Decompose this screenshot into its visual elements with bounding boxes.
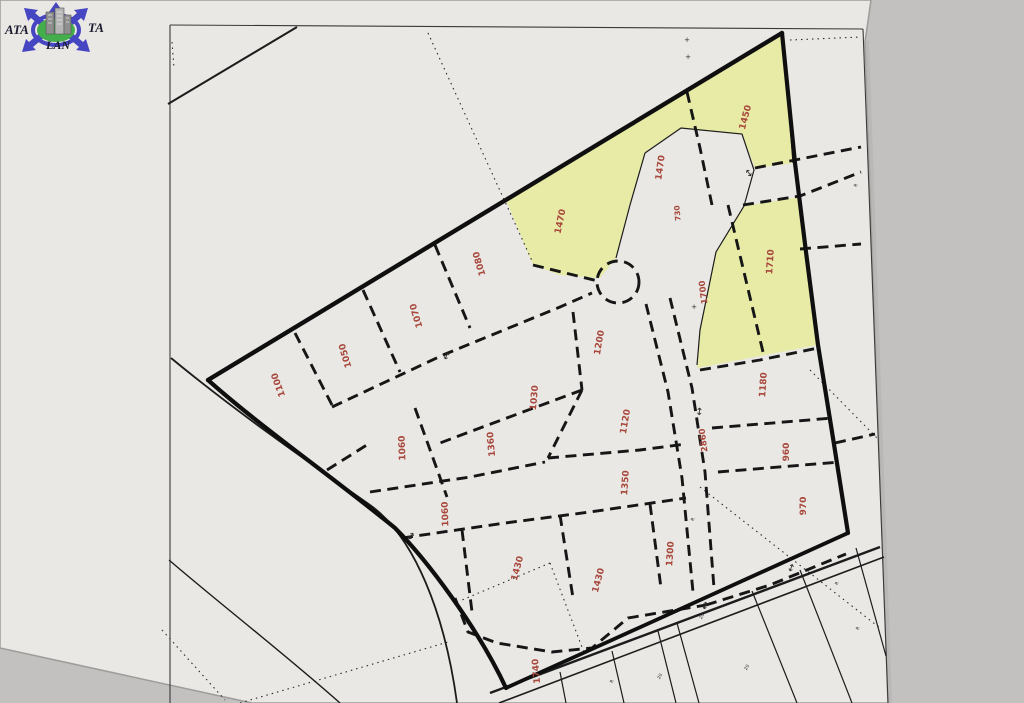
survey-mark: + <box>684 36 690 44</box>
parcel-number-label: 1060 <box>441 501 452 526</box>
parcel-number-label: 1180 <box>758 372 770 398</box>
logo-text-ta: TA <box>88 20 104 36</box>
parcel-number-label: 1350 <box>620 470 632 496</box>
parcel-number-label: 1710 <box>765 249 777 275</box>
logo-text-ata: ATA <box>5 22 29 38</box>
parcel-number-label: 1060 <box>398 435 409 460</box>
survey-mark: ↕ <box>695 407 704 419</box>
cadastral-map: 1450147014707301710170010801070105011001… <box>0 0 1024 703</box>
survey-mark: + <box>685 53 691 61</box>
logo-buildings-icon <box>46 8 71 34</box>
company-logo: ATA TA LAN <box>2 0 110 62</box>
logo-text-lan: LAN <box>46 38 70 53</box>
parcel-number-label: 970 <box>799 497 809 516</box>
survey-mark: + <box>691 303 697 311</box>
parcel-number-label: 960 <box>782 443 792 462</box>
parcel-number-label: 1300 <box>665 541 677 567</box>
map-photo: 1450147014707301710170010801070105011001… <box>0 0 1024 703</box>
parcel-number-label: 730 <box>672 205 682 221</box>
